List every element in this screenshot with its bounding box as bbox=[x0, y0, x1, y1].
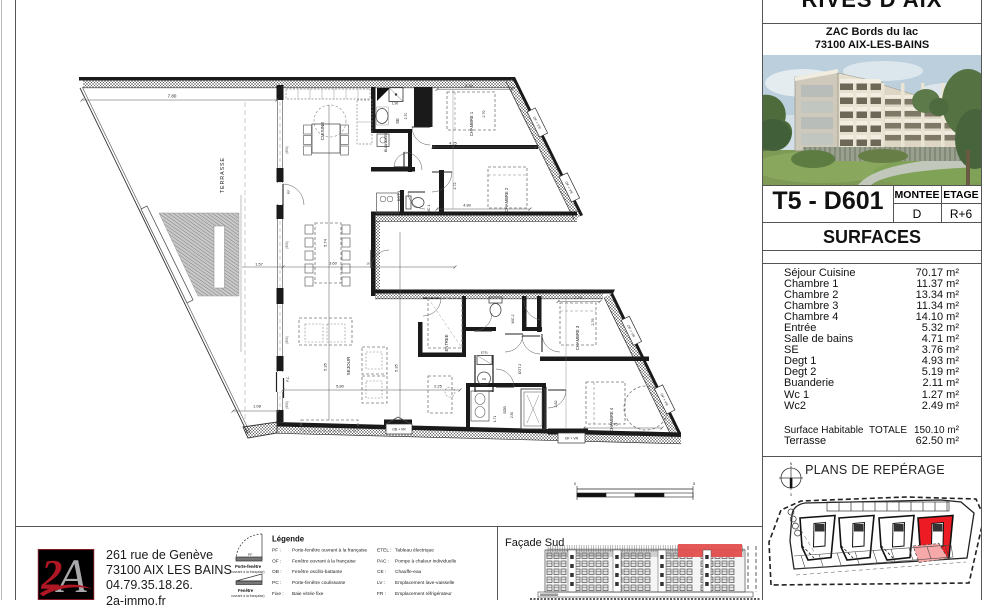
svg-text:5.74: 5.74 bbox=[323, 238, 328, 247]
svg-text:Fenêtre ouvrant à la française: Fenêtre ouvrant à la française bbox=[292, 558, 356, 564]
svg-text:FR :: FR : bbox=[377, 591, 386, 597]
svg-text:(850): (850) bbox=[285, 336, 289, 343]
svg-text:5: 5 bbox=[693, 481, 696, 486]
svg-text:ouvrant à la française): ouvrant à la française) bbox=[231, 594, 265, 598]
svg-text:Chauffe-eau: Chauffe-eau bbox=[395, 569, 422, 575]
svg-text:Porte-fenêtre ouvrant à la fra: Porte-fenêtre ouvrant à la française bbox=[292, 548, 368, 554]
svg-text:TERRASSE: TERRASSE bbox=[220, 157, 226, 193]
svg-text:2.25: 2.25 bbox=[434, 384, 443, 389]
svg-text:P.F: P.F bbox=[287, 190, 291, 195]
svg-text:1.71: 1.71 bbox=[493, 416, 497, 422]
svg-text:4.89: 4.89 bbox=[463, 204, 470, 208]
svg-text:PF: PF bbox=[248, 553, 252, 557]
svg-text:Baie vitrée fixe: Baie vitrée fixe bbox=[292, 591, 324, 597]
svg-text:PC :: PC : bbox=[272, 580, 281, 586]
svg-text:2.30: 2.30 bbox=[510, 412, 514, 418]
svg-text:Emplacement lave-vaisselle: Emplacement lave-vaisselle bbox=[395, 580, 455, 586]
svg-text:P.C.: P.C. bbox=[286, 376, 290, 382]
svg-text:5.35: 5.35 bbox=[323, 362, 328, 371]
svg-text:ouvrant à la française): ouvrant à la française) bbox=[231, 570, 265, 574]
svg-text:BUANDERIE: BUANDERIE bbox=[384, 130, 388, 152]
svg-text:SDB: SDB bbox=[503, 406, 507, 414]
svg-text:CE: CE bbox=[482, 377, 486, 381]
svg-text:2.72: 2.72 bbox=[453, 183, 457, 190]
svg-text:PF :: PF : bbox=[272, 548, 281, 554]
svg-text:DGT 2: DGT 2 bbox=[518, 364, 522, 375]
svg-text:0: 0 bbox=[574, 481, 577, 486]
svg-text:Fenêtre: Fenêtre bbox=[238, 588, 254, 593]
svg-text:OB :: OB : bbox=[272, 569, 282, 575]
svg-text:(850): (850) bbox=[285, 241, 289, 248]
svg-text:2.82: 2.82 bbox=[554, 401, 558, 408]
svg-text:Fixe :: Fixe : bbox=[272, 591, 284, 597]
svg-text:PAC :: PAC : bbox=[377, 558, 389, 564]
svg-text:CHAMBRE 4: CHAMBRE 4 bbox=[609, 407, 614, 432]
svg-text:CHAMBRE 1: CHAMBRE 1 bbox=[469, 111, 474, 136]
svg-text:3.60: 3.60 bbox=[329, 261, 338, 266]
svg-text:ENTREE: ENTREE bbox=[444, 334, 449, 351]
svg-text:Pompe à chaleur individuelle: Pompe à chaleur individuelle bbox=[395, 558, 457, 564]
svg-text:OB + VR: OB + VR bbox=[392, 428, 406, 432]
svg-text:4.75: 4.75 bbox=[610, 423, 617, 427]
svg-text:OF :: OF : bbox=[272, 558, 281, 564]
svg-text:ETEL: ETEL bbox=[481, 351, 489, 355]
svg-text:2.76: 2.76 bbox=[591, 319, 595, 326]
svg-text:CE :: CE : bbox=[377, 569, 386, 575]
svg-text:SE: SE bbox=[395, 118, 400, 124]
svg-text:2.70: 2.70 bbox=[482, 111, 486, 118]
svg-text:Fenêtre oscillo-battante: Fenêtre oscillo-battante bbox=[292, 569, 342, 575]
svg-text:8.34: 8.34 bbox=[465, 84, 472, 88]
svg-text:CHAMBRE 3: CHAMBRE 3 bbox=[575, 325, 580, 350]
svg-text:LV :: LV : bbox=[377, 580, 385, 586]
svg-text:18: 18 bbox=[366, 262, 370, 266]
svg-text:Emplacement réfrigérateur: Emplacement réfrigérateur bbox=[395, 591, 452, 597]
svg-text:2.70: 2.70 bbox=[404, 113, 408, 120]
svg-text:S: S bbox=[790, 493, 793, 497]
svg-text:WC 1: WC 1 bbox=[427, 205, 431, 214]
svg-text:1.57: 1.57 bbox=[255, 263, 262, 267]
svg-text:Porte-fenêtre: Porte-fenêtre bbox=[235, 564, 262, 569]
svg-text:1.08: 1.08 bbox=[253, 404, 262, 409]
svg-text:SEJOUR: SEJOUR bbox=[346, 356, 351, 375]
svg-text:Façade Sud: Façade Sud bbox=[505, 537, 564, 549]
svg-text:5.80: 5.80 bbox=[336, 384, 345, 389]
svg-text:WC 2: WC 2 bbox=[511, 315, 515, 324]
svg-text:2.79: 2.79 bbox=[574, 296, 581, 300]
svg-text:(850): (850) bbox=[285, 401, 289, 408]
svg-text:Légende: Légende bbox=[272, 535, 305, 544]
svg-text:OF + VR: OF + VR bbox=[565, 437, 579, 441]
svg-text:N: N bbox=[790, 462, 793, 466]
svg-text:(850): (850) bbox=[285, 146, 289, 153]
svg-text:Tableau électrique: Tableau électrique bbox=[395, 548, 434, 554]
svg-text:DGT 1: DGT 1 bbox=[397, 191, 401, 202]
svg-text:7.80: 7.80 bbox=[168, 94, 177, 99]
svg-text:CHAMBRE 2: CHAMBRE 2 bbox=[504, 187, 509, 212]
svg-text:5.35: 5.35 bbox=[394, 363, 399, 372]
svg-text:Porte-fenêtre coulissante: Porte-fenêtre coulissante bbox=[292, 580, 346, 586]
svg-text:A: A bbox=[55, 551, 88, 600]
svg-text:ETEL :: ETEL : bbox=[377, 548, 391, 554]
svg-text:1.90: 1.90 bbox=[392, 102, 399, 106]
svg-text:CUISINE: CUISINE bbox=[320, 122, 325, 141]
